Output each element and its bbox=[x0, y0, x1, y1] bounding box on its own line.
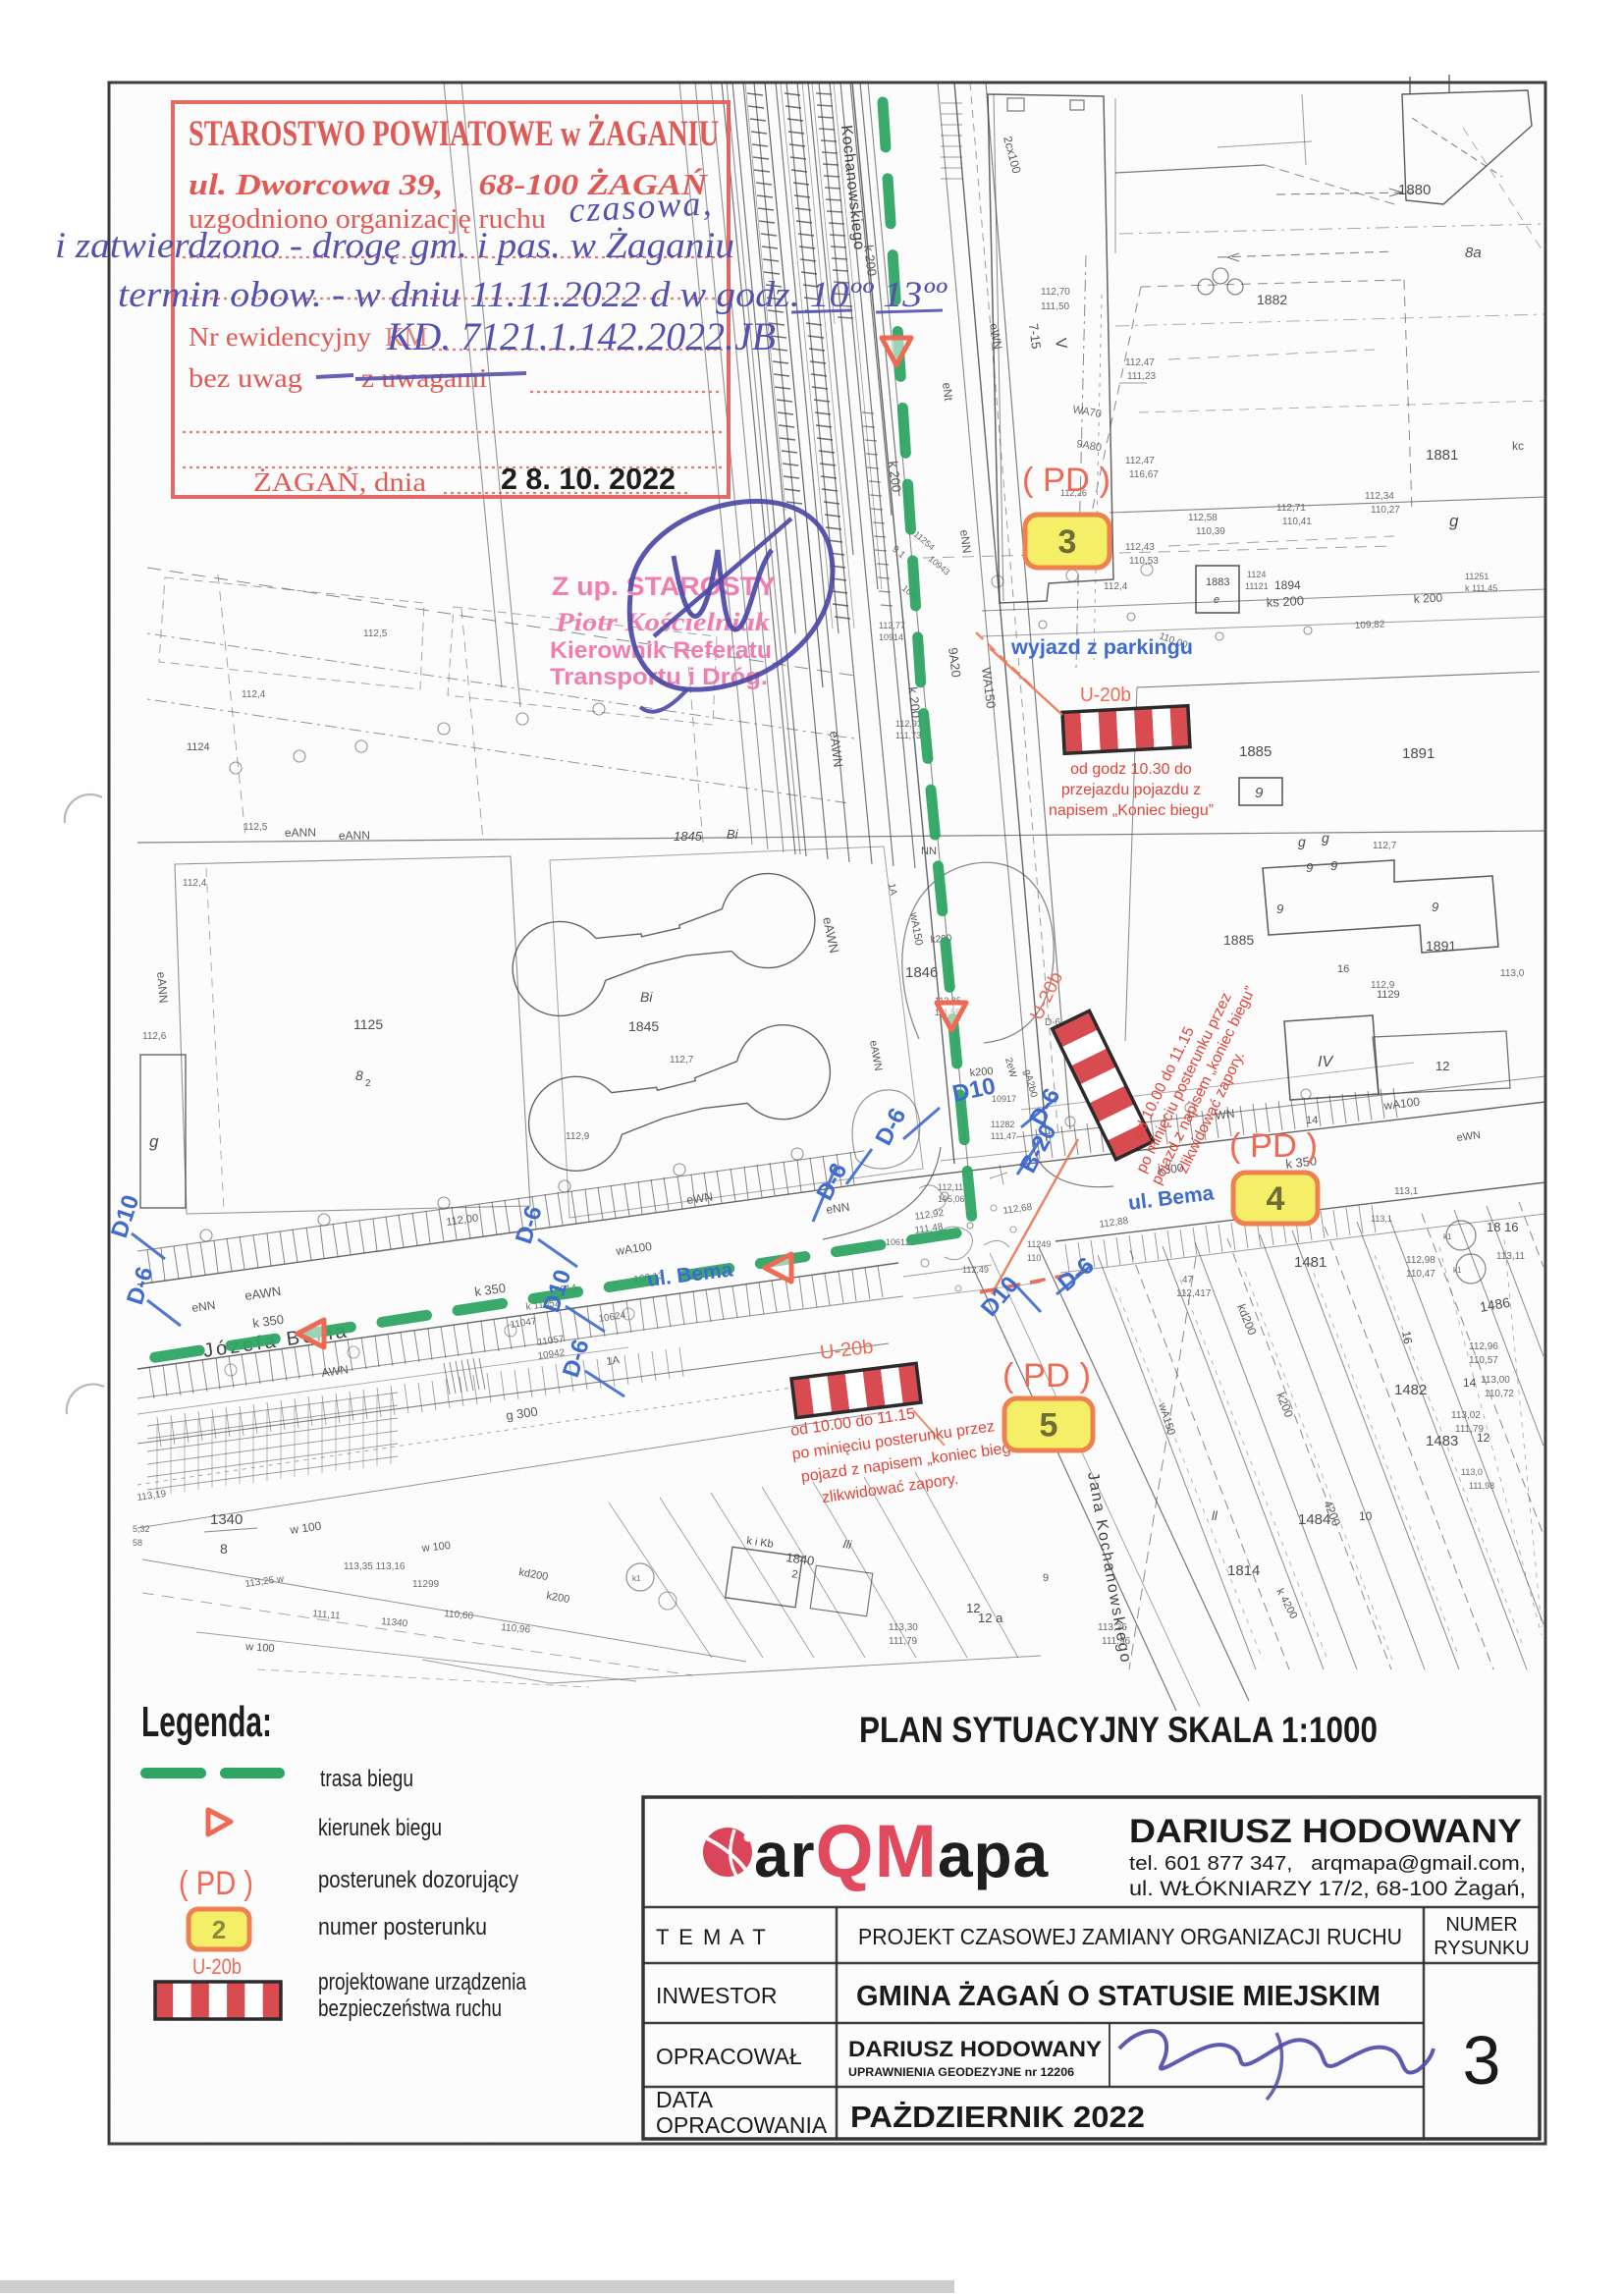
svg-text:110,27: 110,27 bbox=[1371, 505, 1400, 516]
svg-text:1814: 1814 bbox=[1227, 1562, 1260, 1579]
svg-text:g: g bbox=[1449, 512, 1459, 530]
svg-text:k 200: k 200 bbox=[1413, 590, 1442, 606]
svg-text:58: 58 bbox=[133, 1538, 142, 1548]
svg-text:1483: 1483 bbox=[1426, 1433, 1458, 1449]
svg-text:8: 8 bbox=[355, 1067, 363, 1083]
svg-text:111,50: 111,50 bbox=[1041, 301, 1070, 312]
svg-text:110,39: 110,39 bbox=[1196, 526, 1225, 537]
svg-text:Bi: Bi bbox=[640, 989, 653, 1005]
svg-text:1885: 1885 bbox=[1239, 743, 1272, 760]
svg-text:numer posterunku: numer posterunku bbox=[318, 1914, 487, 1941]
svg-text:RYSUNKU: RYSUNKU bbox=[1434, 1938, 1529, 1959]
svg-text:1124: 1124 bbox=[187, 741, 210, 753]
svg-text:Z up. STAROSTY: Z up. STAROSTY bbox=[552, 572, 776, 601]
svg-text:1481: 1481 bbox=[1294, 1254, 1326, 1271]
svg-text:112,417: 112,417 bbox=[1176, 1288, 1212, 1299]
svg-text:111,79: 111,79 bbox=[889, 1636, 918, 1647]
svg-text:1891: 1891 bbox=[1426, 938, 1456, 954]
svg-text:112,5: 112,5 bbox=[244, 822, 268, 833]
svg-text:110,72: 110,72 bbox=[1485, 1389, 1514, 1399]
svg-text:przejazdu pojazdu z: przejazdu pojazdu z bbox=[1061, 782, 1201, 798]
svg-text:Kierownik Referatu: Kierownik Referatu bbox=[550, 637, 772, 664]
svg-text:113,30: 113,30 bbox=[889, 1622, 918, 1633]
svg-text:kierunek biegu: kierunek biegu bbox=[318, 1815, 442, 1841]
svg-text:10914: 10914 bbox=[879, 632, 903, 642]
svg-text:112,93: 112,93 bbox=[895, 719, 922, 729]
svg-text:i zatwierdzono - drogę gm. i p: i zatwierdzono - drogę gm. i pas. w Żaga… bbox=[55, 226, 734, 266]
svg-text:termin obow. - w dniu 11.11.20: termin obow. - w dniu 11.11.2022 d w god… bbox=[118, 275, 948, 315]
svg-text:U-20b: U-20b bbox=[192, 1954, 242, 1979]
svg-text:eANN: eANN bbox=[154, 971, 171, 1004]
svg-text:113,1: 113,1 bbox=[1371, 1214, 1392, 1224]
svg-text:( PD ): ( PD ) bbox=[1002, 1357, 1091, 1394]
svg-text:napisem „Koniec biegu”: napisem „Koniec biegu” bbox=[1049, 802, 1214, 819]
svg-text:k1: k1 bbox=[632, 1574, 641, 1583]
svg-text:105,06: 105,06 bbox=[938, 1194, 965, 1204]
svg-text:PLAN SYTUACYJNY SKALA 1:1000: PLAN SYTUACYJNY SKALA 1:1000 bbox=[859, 1710, 1378, 1750]
svg-text:2: 2 bbox=[212, 1915, 226, 1944]
svg-text:116,67: 116,67 bbox=[1129, 469, 1159, 480]
svg-text:11251: 11251 bbox=[1465, 572, 1489, 581]
svg-text:posterunek dozorujący: posterunek dozorujący bbox=[318, 1867, 518, 1893]
svg-text:113,11: 113,11 bbox=[1496, 1251, 1526, 1262]
svg-text:GMINA ŻAGAŃ O STATUSIE MIEJSKI: GMINA ŻAGAŃ O STATUSIE MIEJSKIM bbox=[856, 1979, 1380, 2012]
svg-text:113,26: 113,26 bbox=[1098, 1622, 1127, 1633]
svg-text:112,71: 112,71 bbox=[1276, 503, 1306, 514]
svg-text:112,98: 112,98 bbox=[1406, 1255, 1435, 1266]
svg-text:1845: 1845 bbox=[628, 1018, 659, 1034]
svg-text:10: 10 bbox=[1359, 1509, 1373, 1523]
svg-text:1846: 1846 bbox=[905, 964, 938, 981]
svg-text:bez uwag: bez uwag bbox=[189, 363, 302, 393]
svg-text:DARIUSZ HODOWANY: DARIUSZ HODOWANY bbox=[1129, 1813, 1522, 1850]
svg-text:110,41: 110,41 bbox=[1282, 517, 1312, 527]
svg-text:k 111,45: k 111,45 bbox=[1465, 583, 1497, 593]
svg-text:112,47: 112,47 bbox=[1125, 456, 1155, 466]
svg-text:112,43: 112,43 bbox=[1125, 542, 1155, 553]
svg-text:111,23: 111,23 bbox=[1127, 371, 1157, 382]
svg-text:3: 3 bbox=[1463, 2022, 1501, 2099]
svg-text:eNN: eNN bbox=[957, 529, 974, 555]
svg-text:110,47: 110,47 bbox=[1406, 1269, 1435, 1280]
svg-text:112,11: 112,11 bbox=[938, 1182, 963, 1192]
svg-text:112,9: 112,9 bbox=[566, 1131, 590, 1142]
svg-text:112,4: 112,4 bbox=[1104, 581, 1128, 592]
svg-text:111,47: 111,47 bbox=[991, 1131, 1016, 1141]
svg-text:11282: 11282 bbox=[991, 1120, 1014, 1129]
svg-text:UPRAWNIENIA GEODEZYJNE nr 1220: UPRAWNIENIA GEODEZYJNE nr 12206 bbox=[848, 2065, 1074, 2079]
svg-text:111,73: 111,73 bbox=[895, 731, 921, 740]
svg-text:Bi: Bi bbox=[727, 827, 739, 842]
svg-text:4: 4 bbox=[1267, 1180, 1285, 1218]
svg-text:2 8. 10. 2022: 2 8. 10. 2022 bbox=[501, 462, 676, 496]
svg-text:Transportu i Dróg.: Transportu i Dróg. bbox=[550, 664, 768, 690]
svg-text:110,57: 110,57 bbox=[1469, 1355, 1498, 1366]
svg-text:PROJEKT CZASOWEJ ZAMIANY ORGAN: PROJEKT CZASOWEJ ZAMIANY ORGANIZACJI RUC… bbox=[858, 1924, 1402, 1949]
svg-text:k1: k1 bbox=[1443, 1232, 1452, 1241]
svg-text:112,58: 112,58 bbox=[1188, 513, 1218, 523]
svg-text:113,00: 113,00 bbox=[1481, 1375, 1510, 1386]
svg-text:113,35 113,16: 113,35 113,16 bbox=[344, 1561, 406, 1572]
svg-text:czasowa,: czasowa, bbox=[568, 183, 714, 230]
svg-text:16: 16 bbox=[1337, 963, 1349, 975]
svg-text:1880: 1880 bbox=[1398, 182, 1431, 198]
svg-text:112,9: 112,9 bbox=[1371, 980, 1395, 991]
svg-text:k1: k1 bbox=[1453, 1266, 1462, 1275]
svg-text:8a: 8a bbox=[1465, 245, 1482, 261]
svg-text:111,96: 111,96 bbox=[1102, 1636, 1131, 1647]
svg-text:U-20b: U-20b bbox=[1080, 684, 1131, 706]
svg-text:wyjazd z parkingu: wyjazd z parkingu bbox=[1010, 636, 1193, 659]
svg-text:113,0: 113,0 bbox=[1500, 968, 1525, 979]
svg-text:1125: 1125 bbox=[353, 1016, 383, 1032]
svg-text:STAROSTWO POWIATOWE w ŻAGANIU: STAROSTWO POWIATOWE w ŻAGANIU bbox=[189, 113, 719, 154]
svg-text:eANN: eANN bbox=[285, 825, 316, 840]
svg-text:ul. WŁÓKNIARZY 17/2, 68-100 Ża: ul. WŁÓKNIARZY 17/2, 68-100 Żagań, bbox=[1129, 1878, 1526, 1900]
svg-text:12 a: 12 a bbox=[978, 1611, 1003, 1625]
svg-text:IV: IV bbox=[1318, 1054, 1333, 1070]
svg-text:ks 200: ks 200 bbox=[1266, 593, 1304, 610]
svg-text:112,4: 112,4 bbox=[242, 689, 266, 700]
svg-text:9: 9 bbox=[1330, 858, 1337, 873]
svg-text:11121: 11121 bbox=[1245, 581, 1269, 591]
svg-text:eANN: eANN bbox=[339, 828, 370, 843]
svg-text:9: 9 bbox=[1043, 1572, 1049, 1584]
svg-text:112,34: 112,34 bbox=[1365, 491, 1394, 502]
svg-text:eNt: eNt bbox=[940, 382, 955, 403]
svg-text:OPRACOWANIA: OPRACOWANIA bbox=[656, 2112, 828, 2138]
svg-text:9: 9 bbox=[1306, 860, 1313, 875]
svg-text:1882: 1882 bbox=[1257, 292, 1287, 307]
svg-text:e: e bbox=[1214, 594, 1219, 606]
svg-text:od godz 10.30 do: od godz 10.30 do bbox=[1070, 761, 1192, 778]
svg-text:2: 2 bbox=[365, 1078, 371, 1089]
svg-text:1845: 1845 bbox=[674, 829, 703, 844]
svg-text:g: g bbox=[149, 1132, 159, 1151]
svg-text:1A: 1A bbox=[886, 883, 898, 897]
svg-text:( PD ): ( PD ) bbox=[179, 1865, 253, 1902]
svg-text:DARIUSZ HODOWANY: DARIUSZ HODOWANY bbox=[848, 2037, 1102, 2061]
svg-text:tel. 601 877 347, arqmapa@gm: tel. 601 877 347, arqmapa@gmail.com, bbox=[1129, 1853, 1526, 1875]
svg-text:112,4: 112,4 bbox=[183, 878, 207, 889]
svg-text:INWESTOR: INWESTOR bbox=[656, 1983, 778, 2008]
svg-text:9: 9 bbox=[1432, 900, 1438, 914]
svg-text:1124: 1124 bbox=[1247, 570, 1266, 579]
svg-text:112,7: 112,7 bbox=[670, 1055, 694, 1066]
svg-text:( PD ): ( PD ) bbox=[1022, 462, 1110, 499]
svg-text:113,1: 113,1 bbox=[1394, 1186, 1419, 1197]
svg-text:16: 16 bbox=[1399, 1330, 1415, 1345]
svg-text:110: 110 bbox=[1027, 1253, 1041, 1263]
svg-text:bezpieczeństwa ruchu: bezpieczeństwa ruchu bbox=[318, 1995, 502, 2022]
svg-text:NUMER: NUMER bbox=[1445, 1914, 1517, 1936]
svg-text:1340: 1340 bbox=[210, 1511, 243, 1528]
svg-text:1881: 1881 bbox=[1426, 447, 1458, 464]
svg-text:3: 3 bbox=[1058, 523, 1077, 561]
svg-text:g: g bbox=[1322, 830, 1329, 846]
svg-text:kc: kc bbox=[1512, 439, 1524, 453]
svg-text:1A: 1A bbox=[606, 1354, 622, 1368]
svg-text:8: 8 bbox=[220, 1541, 228, 1557]
svg-text:OPRACOWAŁ: OPRACOWAŁ bbox=[656, 2044, 802, 2069]
svg-text:1894: 1894 bbox=[1274, 578, 1301, 592]
svg-text:trasa biegu: trasa biegu bbox=[320, 1766, 413, 1792]
svg-text:PAŻDZIERNIK 2022: PAŻDZIERNIK 2022 bbox=[850, 2100, 1145, 2134]
svg-text:113,02: 113,02 bbox=[1451, 1410, 1481, 1421]
svg-text:11299: 11299 bbox=[412, 1579, 440, 1590]
svg-text:( PD ): ( PD ) bbox=[1229, 1127, 1318, 1165]
svg-text:w 100: w 100 bbox=[244, 1641, 275, 1655]
svg-text:1891: 1891 bbox=[1402, 745, 1435, 762]
svg-text:Nr ewidencyjny: Nr ewidencyjny bbox=[189, 322, 372, 352]
svg-text:1482: 1482 bbox=[1394, 1382, 1427, 1398]
svg-text:111,98: 111,98 bbox=[1469, 1481, 1494, 1491]
svg-text:109,82: 109,82 bbox=[1355, 619, 1386, 631]
svg-text:KD. 7121.1.142.2022.JB: KD. 7121.1.142.2022.JB bbox=[386, 314, 776, 358]
svg-text:T E M A T: T E M A T bbox=[656, 1925, 768, 1949]
svg-text:1885: 1885 bbox=[1223, 932, 1254, 948]
svg-text:7-15: 7-15 bbox=[1026, 323, 1044, 351]
svg-text:112,96: 112,96 bbox=[1469, 1341, 1498, 1352]
svg-text:Legenda:: Legenda: bbox=[141, 1698, 272, 1746]
svg-text:112,70: 112,70 bbox=[1041, 287, 1070, 298]
svg-text:5: 5 bbox=[1040, 1407, 1058, 1445]
svg-text:g: g bbox=[1298, 834, 1306, 849]
svg-text:112,77: 112,77 bbox=[879, 621, 905, 630]
svg-text:NN: NN bbox=[921, 846, 937, 857]
svg-text:ŻAGAŃ, dnia: ŻAGAŃ, dnia bbox=[253, 467, 426, 497]
svg-text:14: 14 bbox=[1463, 1376, 1477, 1390]
svg-text:112,7: 112,7 bbox=[1373, 841, 1397, 851]
svg-text:arQMapa: arQMapa bbox=[754, 1810, 1049, 1893]
svg-text:112,6: 112,6 bbox=[142, 1031, 167, 1042]
svg-text:1883: 1883 bbox=[1206, 576, 1229, 588]
svg-text:112,47: 112,47 bbox=[1125, 357, 1155, 368]
svg-text:18 16: 18 16 bbox=[1487, 1220, 1519, 1234]
svg-text:9: 9 bbox=[1255, 785, 1264, 801]
svg-text:113,0: 113,0 bbox=[1461, 1467, 1483, 1477]
svg-text:projektowane urządzenia: projektowane urządzenia bbox=[318, 1969, 527, 1995]
svg-text:12: 12 bbox=[1435, 1059, 1449, 1073]
svg-text:112,5: 112,5 bbox=[363, 629, 388, 639]
svg-text:9: 9 bbox=[1276, 902, 1283, 916]
svg-text:5,32: 5,32 bbox=[133, 1524, 150, 1534]
svg-text:DATA: DATA bbox=[656, 2087, 714, 2112]
svg-text:111,79: 111,79 bbox=[1455, 1424, 1485, 1435]
